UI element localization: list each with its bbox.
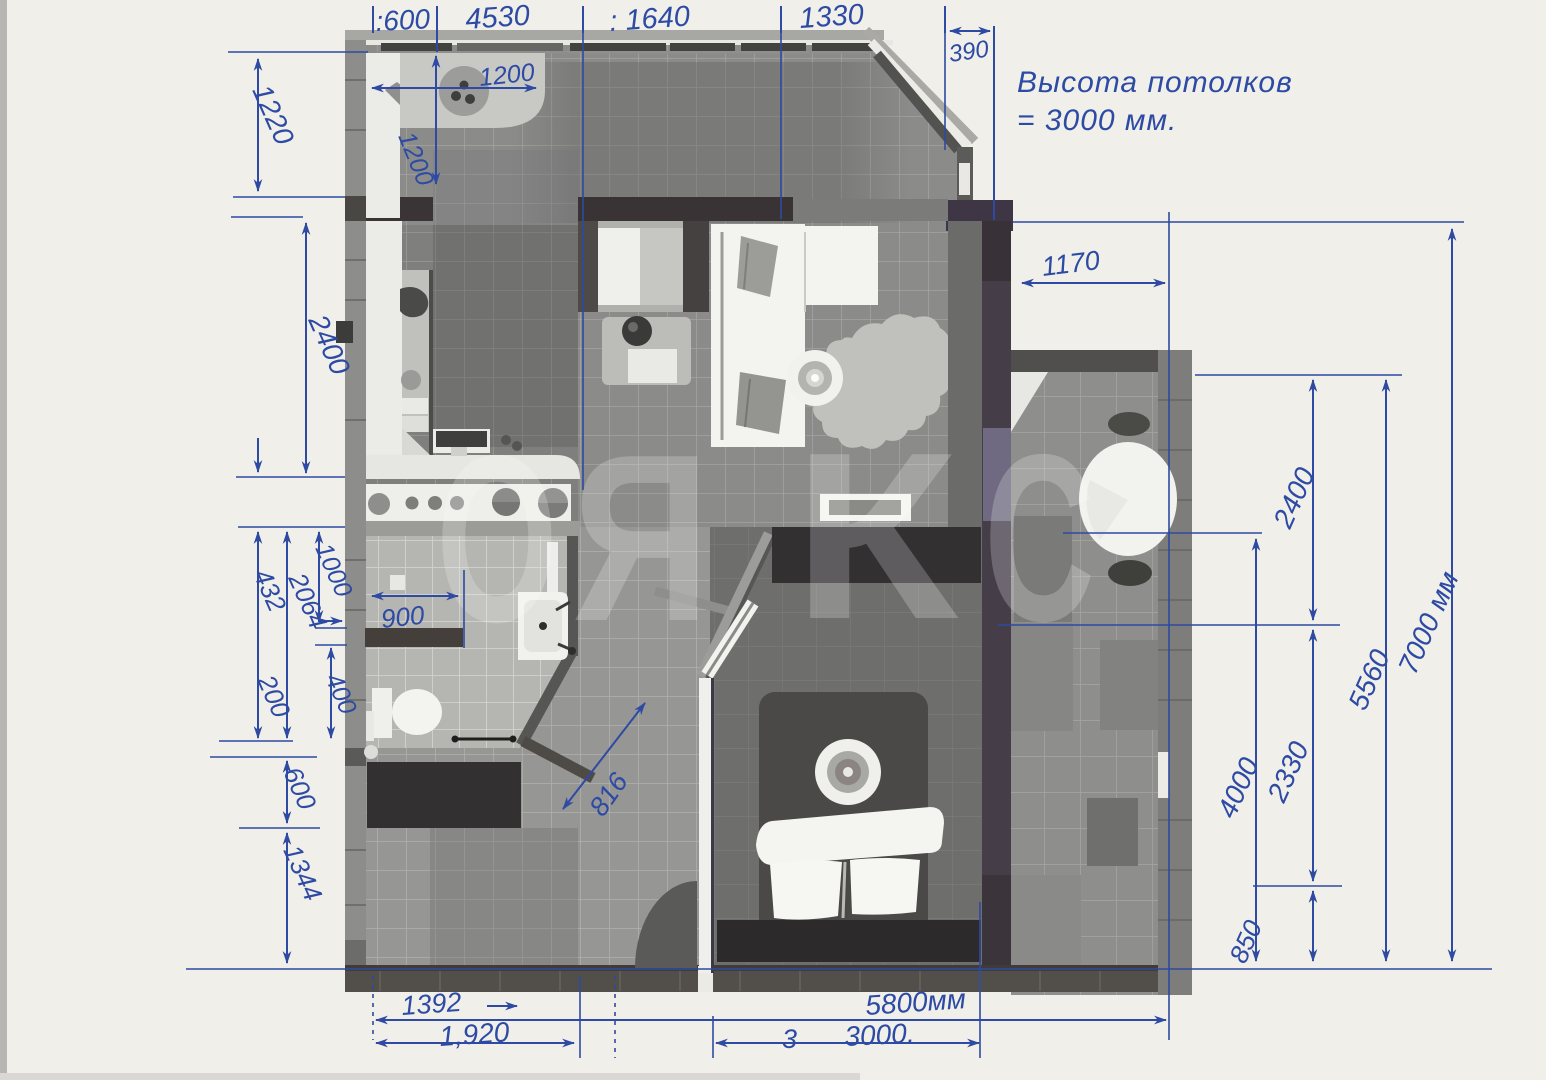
svg-text:О: О [436, 407, 558, 672]
svg-text:Я: Я [572, 406, 710, 671]
svg-text:: 1640: : 1640 [608, 0, 691, 38]
svg-text:С: С [984, 406, 1095, 671]
svg-text:4530: 4530 [464, 0, 531, 36]
svg-text:Высота потолков: Высота потолков [1017, 66, 1293, 99]
svg-text:1330: 1330 [798, 0, 865, 35]
svg-text:= 3000 мм.: = 3000 мм. [1017, 104, 1177, 137]
svg-text:900: 900 [379, 600, 426, 634]
svg-text:1392: 1392 [400, 987, 462, 1021]
svg-text:1,920: 1,920 [438, 1016, 510, 1052]
svg-text:3000.: 3000. [844, 1017, 916, 1052]
svg-text:1200: 1200 [478, 58, 536, 92]
svg-text::600: :600 [375, 3, 431, 37]
svg-text:К: К [792, 404, 959, 669]
svg-text:390: 390 [947, 36, 991, 68]
svg-text:3: 3 [782, 1024, 797, 1054]
